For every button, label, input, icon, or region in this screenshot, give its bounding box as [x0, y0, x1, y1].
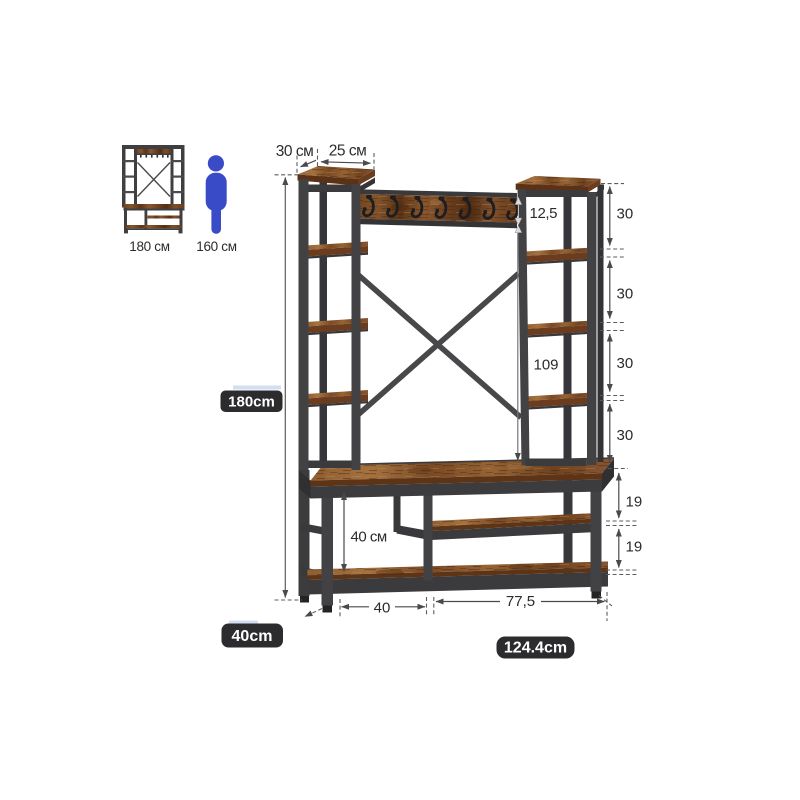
svg-text:30: 30 [617, 355, 634, 372]
svg-text:40 см: 40 см [351, 529, 387, 546]
svg-text:30 см: 30 см [276, 143, 313, 160]
svg-text:124.4cm: 124.4cm [504, 640, 567, 657]
svg-text:25 см: 25 см [329, 143, 366, 160]
svg-text:109: 109 [534, 357, 559, 374]
svg-text:19: 19 [626, 494, 643, 511]
svg-text:40: 40 [374, 600, 391, 617]
svg-text:30: 30 [617, 427, 634, 444]
svg-text:180 см: 180 см [129, 239, 170, 254]
svg-text:77,5: 77,5 [506, 593, 535, 610]
svg-text:12,5: 12,5 [530, 205, 558, 222]
svg-text:30: 30 [617, 206, 634, 223]
svg-text:180cm: 180cm [228, 394, 275, 411]
svg-text:19: 19 [626, 539, 643, 556]
svg-text:30: 30 [617, 286, 634, 303]
svg-text:40cm: 40cm [232, 628, 273, 645]
svg-text:160 см: 160 см [196, 239, 237, 254]
